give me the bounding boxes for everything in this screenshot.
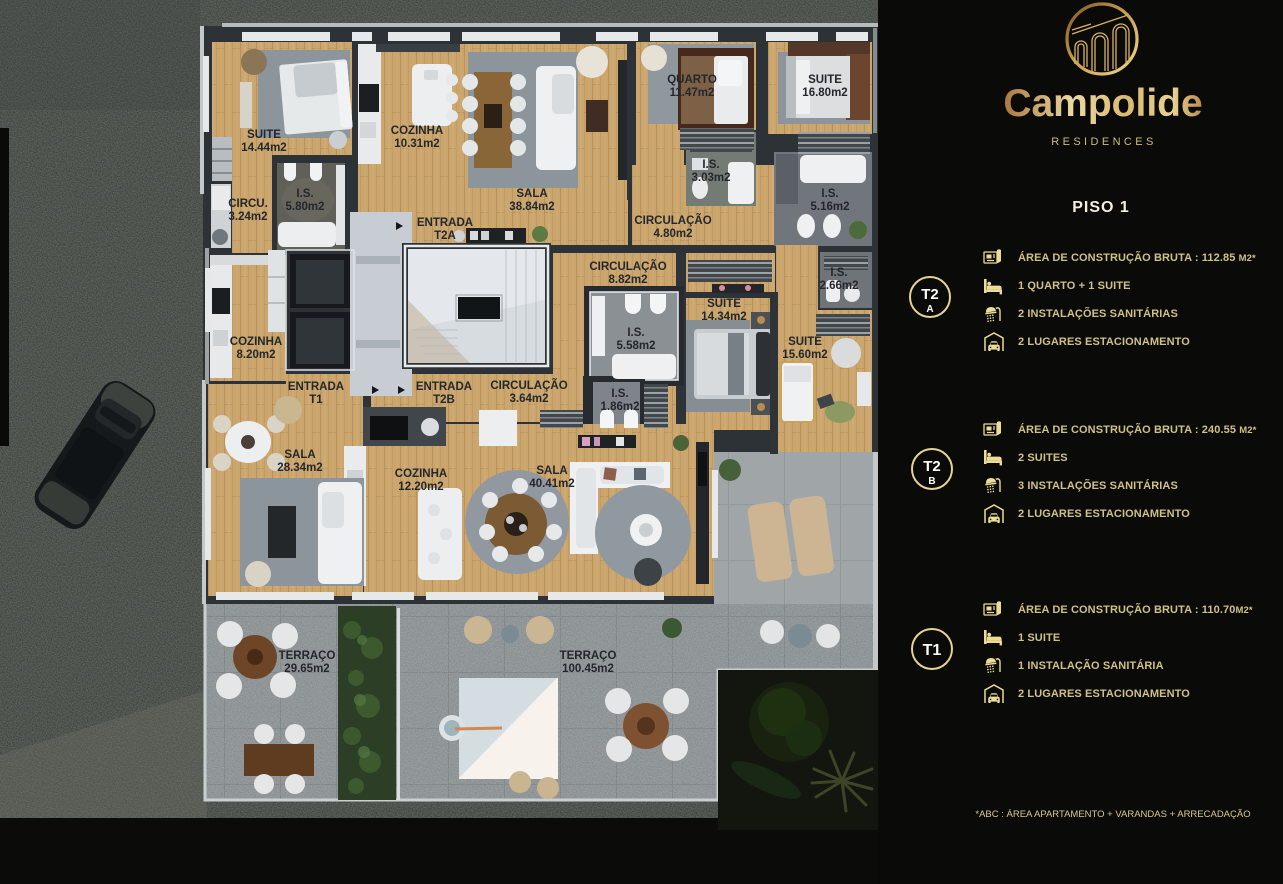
svg-text:2 LUGARES ESTACIONAMENTO: 2 LUGARES ESTACIONAMENTO xyxy=(1018,688,1190,700)
svg-text:8.20m2: 8.20m2 xyxy=(236,349,275,361)
svg-text:11.47m2: 11.47m2 xyxy=(670,87,715,99)
svg-text:3.24m2: 3.24m2 xyxy=(228,211,267,223)
svg-text:5.58m2: 5.58m2 xyxy=(616,340,655,352)
svg-text:T2: T2 xyxy=(921,286,939,303)
svg-text:QUARTO: QUARTO xyxy=(667,74,717,86)
svg-text:2 INSTALAÇÕES SANITÁRIAS: 2 INSTALAÇÕES SANITÁRIAS xyxy=(1018,307,1178,320)
svg-text:ÁREA DE CONSTRUÇÃO BRUTA : 11: ÁREA DE CONSTRUÇÃO BRUTA : 112.85 M2* xyxy=(1018,251,1256,264)
svg-text:T2: T2 xyxy=(923,458,941,475)
svg-text:ÁREA DE CONSTRUÇÃO BRUTA : 24: ÁREA DE CONSTRUÇÃO BRUTA : 240.55 M2* xyxy=(1018,423,1257,436)
svg-text:2 SUITES: 2 SUITES xyxy=(1018,452,1068,464)
svg-text:4.80m2: 4.80m2 xyxy=(653,228,692,240)
svg-text:I.S.: I.S. xyxy=(296,188,313,200)
svg-text:COZINHA: COZINHA xyxy=(391,125,443,137)
svg-text:2.66m2: 2.66m2 xyxy=(819,280,858,292)
svg-text:TERRAÇO: TERRAÇO xyxy=(560,650,617,662)
svg-text:T2B: T2B xyxy=(433,394,455,406)
svg-text:28.34m2: 28.34m2 xyxy=(277,462,322,474)
svg-text:Campolide: Campolide xyxy=(1003,82,1202,125)
svg-text:1 QUARTO + 1 SUITE: 1 QUARTO + 1 SUITE xyxy=(1018,280,1131,292)
svg-text:2 LUGARES ESTACIONAMENTO: 2 LUGARES ESTACIONAMENTO xyxy=(1018,508,1190,520)
svg-text:COZINHA: COZINHA xyxy=(230,336,282,348)
svg-text:1 INSTALAÇÃO SANITÁRIA: 1 INSTALAÇÃO SANITÁRIA xyxy=(1018,659,1164,672)
svg-text:COZINHA: COZINHA xyxy=(395,468,447,480)
svg-text:3 INSTALAÇÕES SANITÁRIAS: 3 INSTALAÇÕES SANITÁRIAS xyxy=(1018,479,1178,492)
svg-text:12.20m2: 12.20m2 xyxy=(398,481,443,493)
svg-text:T1: T1 xyxy=(923,642,942,659)
svg-text:SUITE: SUITE xyxy=(707,298,741,310)
svg-text:SALA: SALA xyxy=(284,449,315,461)
svg-text:B: B xyxy=(928,476,935,487)
svg-text:ENTRADA: ENTRADA xyxy=(417,217,473,229)
svg-text:I.S.: I.S. xyxy=(821,188,838,200)
svg-text:5.80m2: 5.80m2 xyxy=(285,201,324,213)
svg-text:I.S.: I.S. xyxy=(830,267,847,279)
svg-text:I.S.: I.S. xyxy=(627,327,644,339)
svg-text:I.S.: I.S. xyxy=(702,159,719,171)
svg-text:1 SUITE: 1 SUITE xyxy=(1018,632,1060,644)
svg-text:CIRCULAÇÃO: CIRCULAÇÃO xyxy=(634,214,711,227)
svg-text:14.34m2: 14.34m2 xyxy=(701,311,746,323)
svg-text:16.80m2: 16.80m2 xyxy=(802,87,847,99)
svg-text:ENTRADA: ENTRADA xyxy=(288,381,344,393)
svg-text:TERRAÇO: TERRAÇO xyxy=(279,650,336,662)
svg-text:SUITE: SUITE xyxy=(808,74,842,86)
svg-text:RESIDENCES: RESIDENCES xyxy=(1051,136,1157,148)
svg-text:I.S.: I.S. xyxy=(611,388,628,400)
svg-text:SUITE: SUITE xyxy=(788,336,822,348)
svg-text:3.64m2: 3.64m2 xyxy=(509,393,548,405)
svg-text:ÁREA DE CONSTRUÇÃO BRUTA : 11: ÁREA DE CONSTRUÇÃO BRUTA : 110.70M2* xyxy=(1018,603,1253,616)
svg-text:SUITE: SUITE xyxy=(247,129,281,141)
svg-text:10.31m2: 10.31m2 xyxy=(394,138,439,150)
svg-text:SALA: SALA xyxy=(536,465,567,477)
svg-text:40.41m2: 40.41m2 xyxy=(529,478,574,490)
svg-text:1.86m2: 1.86m2 xyxy=(600,401,639,413)
svg-text:PISO 1: PISO 1 xyxy=(1072,199,1130,216)
svg-text:CIRCULAÇÃO: CIRCULAÇÃO xyxy=(589,260,666,273)
svg-text:CIRCU.: CIRCU. xyxy=(228,198,268,210)
svg-text:100.45m2: 100.45m2 xyxy=(562,663,614,675)
svg-text:14.44m2: 14.44m2 xyxy=(241,142,286,154)
svg-text:T2A: T2A xyxy=(434,230,456,242)
svg-text:15.60m2: 15.60m2 xyxy=(782,349,827,361)
svg-text:SALA: SALA xyxy=(516,188,547,200)
svg-text:T1: T1 xyxy=(309,394,323,406)
svg-text:29.65m2: 29.65m2 xyxy=(284,663,329,675)
svg-text:8.82m2: 8.82m2 xyxy=(608,274,647,286)
svg-text:5.16m2: 5.16m2 xyxy=(810,201,849,213)
svg-text:3.03m2: 3.03m2 xyxy=(691,172,730,184)
svg-text:CIRCULAÇÃO: CIRCULAÇÃO xyxy=(490,379,567,392)
svg-text:2 LUGARES ESTACIONAMENTO: 2 LUGARES ESTACIONAMENTO xyxy=(1018,336,1190,348)
svg-text:*ABC : ÁREA APARTAMENTO + VAR: *ABC : ÁREA APARTAMENTO + VARANDAS + ARR… xyxy=(975,809,1250,820)
svg-text:A: A xyxy=(926,304,933,315)
svg-text:ENTRADA: ENTRADA xyxy=(416,381,472,393)
svg-text:38.84m2: 38.84m2 xyxy=(509,201,554,213)
